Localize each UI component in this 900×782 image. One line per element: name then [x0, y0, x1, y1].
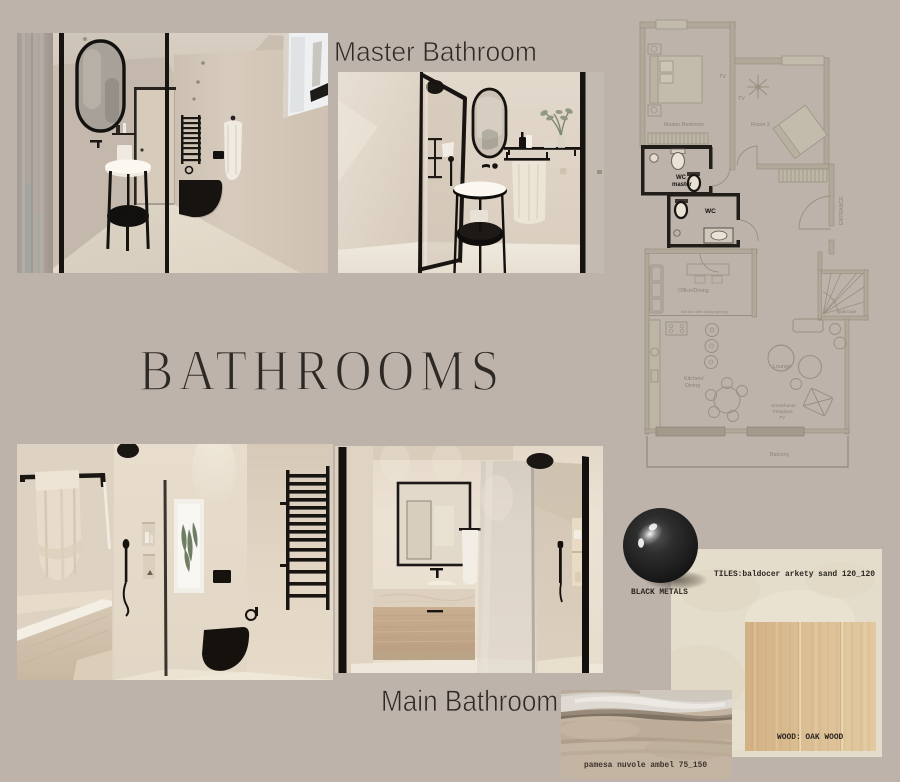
svg-text:fold door with sliding opening: fold door with sliding opening	[681, 310, 727, 314]
svg-text:Dining: Dining	[685, 383, 700, 389]
svg-text:WC: WC	[705, 208, 716, 215]
svg-text:WOOD: OAK WOOD: WOOD: OAK WOOD	[777, 733, 844, 742]
svg-text:TV: TV	[719, 74, 726, 80]
svg-text:TV: TV	[738, 96, 745, 102]
svg-text:master: master	[672, 182, 692, 188]
svg-text:Room 2: Room 2	[751, 122, 770, 128]
svg-text:pamesa nuvole ambel 75_150: pamesa nuvole ambel 75_150	[584, 761, 707, 770]
svg-text:Balcony: Balcony	[770, 452, 789, 458]
svg-text:TILES:baldocer arkety sand 120: TILES:baldocer arkety sand 120_120	[714, 570, 875, 579]
svg-text:staircase: staircase	[838, 309, 857, 314]
svg-text:Kitchen/: Kitchen/	[684, 376, 704, 382]
svg-text:TV: TV	[779, 415, 786, 421]
svg-text:ENTRANCE: ENTRANCE	[839, 196, 845, 225]
svg-text:Master Bedroom: Master Bedroom	[664, 122, 704, 128]
svg-text:WC: WC	[676, 175, 687, 181]
svg-text:Fireplace: Fireplace	[773, 409, 793, 415]
svg-text:Office/Dining: Office/Dining	[678, 288, 709, 294]
svg-text:BLACK METALS: BLACK METALS	[631, 588, 688, 597]
svg-text:Smarthanel: Smarthanel	[771, 403, 796, 409]
svg-text:Lounge: Lounge	[773, 364, 791, 370]
